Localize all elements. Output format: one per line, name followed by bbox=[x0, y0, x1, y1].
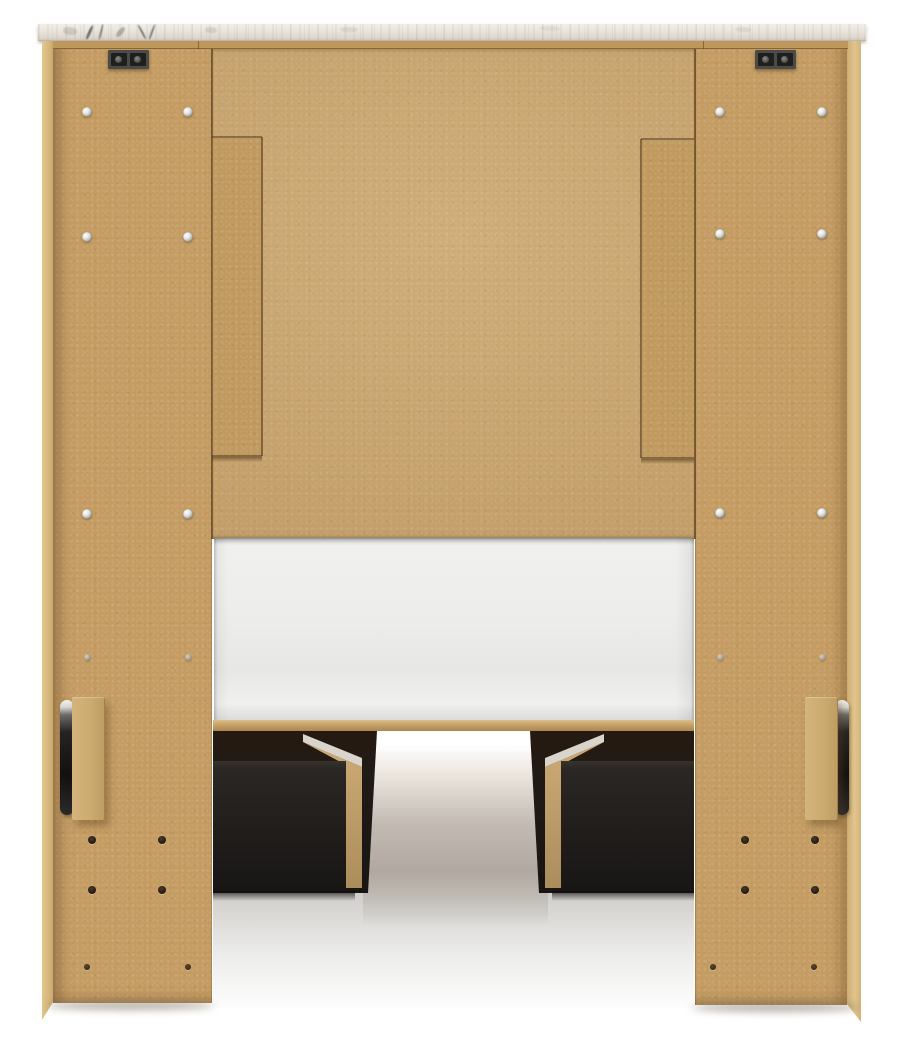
assembly-screw bbox=[817, 508, 827, 518]
drill-hole bbox=[741, 836, 749, 844]
bed-back-product-photo bbox=[0, 0, 901, 1050]
drill-hole bbox=[741, 886, 749, 894]
small-screw bbox=[717, 654, 724, 661]
pilot-hole bbox=[811, 964, 817, 970]
assembly-screw bbox=[715, 508, 725, 518]
assembly-screw bbox=[82, 509, 92, 519]
small-screw bbox=[84, 654, 91, 661]
pilot-hole bbox=[710, 964, 716, 970]
small-screw bbox=[185, 654, 192, 661]
drill-hole bbox=[811, 836, 819, 844]
right-leg-floor-shadow bbox=[692, 1003, 860, 1012]
left-leg-floor-shadow bbox=[46, 1001, 214, 1010]
assembly-screw bbox=[817, 229, 827, 239]
assembly-screw bbox=[82, 232, 92, 242]
assembly-screw bbox=[715, 229, 725, 239]
drill-hole bbox=[88, 886, 96, 894]
hardware-layer bbox=[0, 0, 901, 1050]
assembly-screw bbox=[183, 509, 193, 519]
small-screw bbox=[819, 654, 826, 661]
drill-hole bbox=[158, 836, 166, 844]
assembly-screw bbox=[183, 232, 193, 242]
drill-hole bbox=[158, 886, 166, 894]
assembly-screw bbox=[183, 107, 193, 117]
assembly-screw bbox=[817, 107, 827, 117]
drill-hole bbox=[88, 836, 96, 844]
assembly-screw bbox=[82, 107, 92, 117]
assembly-screw bbox=[715, 107, 725, 117]
drill-hole bbox=[811, 886, 819, 894]
pilot-hole bbox=[185, 964, 191, 970]
pilot-hole bbox=[84, 964, 90, 970]
